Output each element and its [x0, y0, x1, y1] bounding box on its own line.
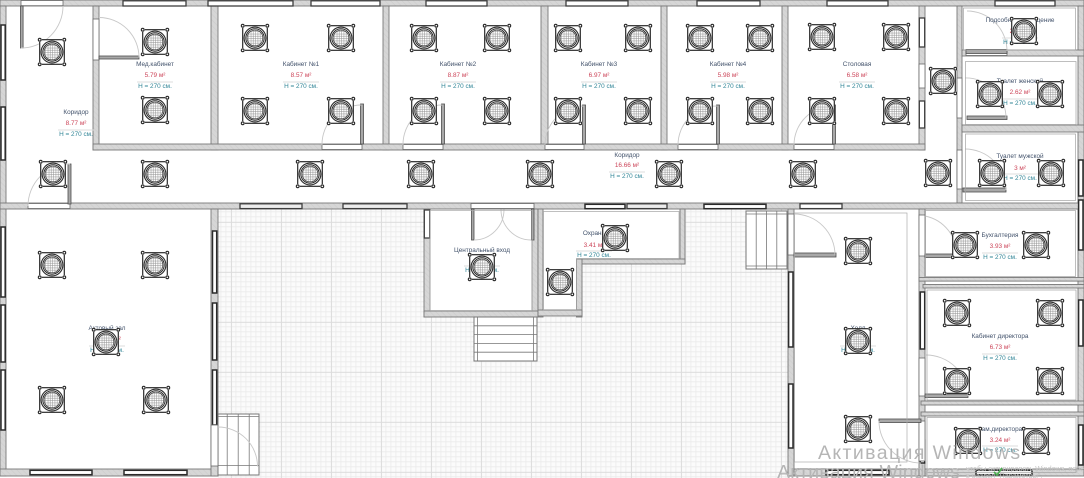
- svg-text:5.79 м²: 5.79 м²: [145, 72, 166, 79]
- svg-text:Кабинет №4: Кабинет №4: [710, 60, 747, 68]
- svg-text:H = 270 см.: H = 270 см.: [610, 173, 644, 180]
- svg-text:16.66 м²: 16.66 м²: [615, 162, 639, 169]
- svg-text:8.77 м²: 8.77 м²: [66, 120, 87, 127]
- svg-text:H = 270 см.: H = 270 см.: [59, 131, 93, 138]
- svg-text:Активация Windows: Активация Windows: [777, 462, 960, 478]
- svg-text:Кабинет №2: Кабинет №2: [440, 60, 477, 68]
- svg-text:Столовая: Столовая: [843, 61, 872, 68]
- svg-text:Кабинет №1: Кабинет №1: [283, 60, 320, 68]
- svg-text:H = 270 см.: H = 270 см.: [441, 83, 475, 90]
- svg-text:2.62 м²: 2.62 м²: [1010, 89, 1031, 96]
- svg-text:H = 270 см.: H = 270 см.: [284, 83, 318, 90]
- svg-text:Коридор: Коридор: [63, 109, 89, 116]
- svg-text:Зам.директора: Зам.директора: [978, 426, 1023, 433]
- svg-text:H = 270 см.: H = 270 см.: [711, 83, 745, 90]
- svg-text:Мед.кабинет: Мед.кабинет: [136, 60, 174, 68]
- svg-text:Кабинет директора: Кабинет директора: [972, 332, 1029, 340]
- svg-text:Коридор: Коридор: [614, 152, 640, 159]
- svg-text:6.58 м²: 6.58 м²: [847, 72, 868, 79]
- svg-text:в раздел "Параметры".: в раздел "Параметры".: [966, 471, 1042, 478]
- svg-text:H = 270 см.: H = 270 см.: [1003, 100, 1037, 107]
- svg-text:Центральный вход: Центральный вход: [454, 246, 510, 254]
- svg-text:H = 270 см.: H = 270 см.: [582, 83, 616, 90]
- svg-text:Кабинет №3: Кабинет №3: [581, 60, 618, 68]
- svg-text:5.98 м²: 5.98 м²: [718, 72, 739, 79]
- svg-text:H = 270 см.: H = 270 см.: [138, 83, 172, 90]
- svg-text:6.97 м²: 6.97 м²: [589, 72, 610, 79]
- svg-text:H = 270 см.: H = 270 см.: [577, 252, 611, 259]
- svg-text:8.57 м²: 8.57 м²: [291, 72, 312, 79]
- svg-text:3.93 м²: 3.93 м²: [990, 243, 1011, 250]
- svg-text:8.87 м²: 8.87 м²: [448, 72, 469, 79]
- svg-text:H = 270 см.: H = 270 см.: [840, 83, 874, 90]
- svg-text:6.73 м²: 6.73 м²: [990, 344, 1011, 351]
- svg-text:3 м²: 3 м²: [1014, 165, 1026, 172]
- svg-text:H = 270 см.: H = 270 см.: [983, 254, 1017, 261]
- svg-text:H = 270 см.: H = 270 см.: [1003, 175, 1037, 182]
- svg-text:Бухгалтерия: Бухгалтерия: [982, 232, 1019, 239]
- svg-text:3.41 м²: 3.41 м²: [584, 242, 605, 249]
- svg-text:H = 270 см.: H = 270 см.: [983, 355, 1017, 362]
